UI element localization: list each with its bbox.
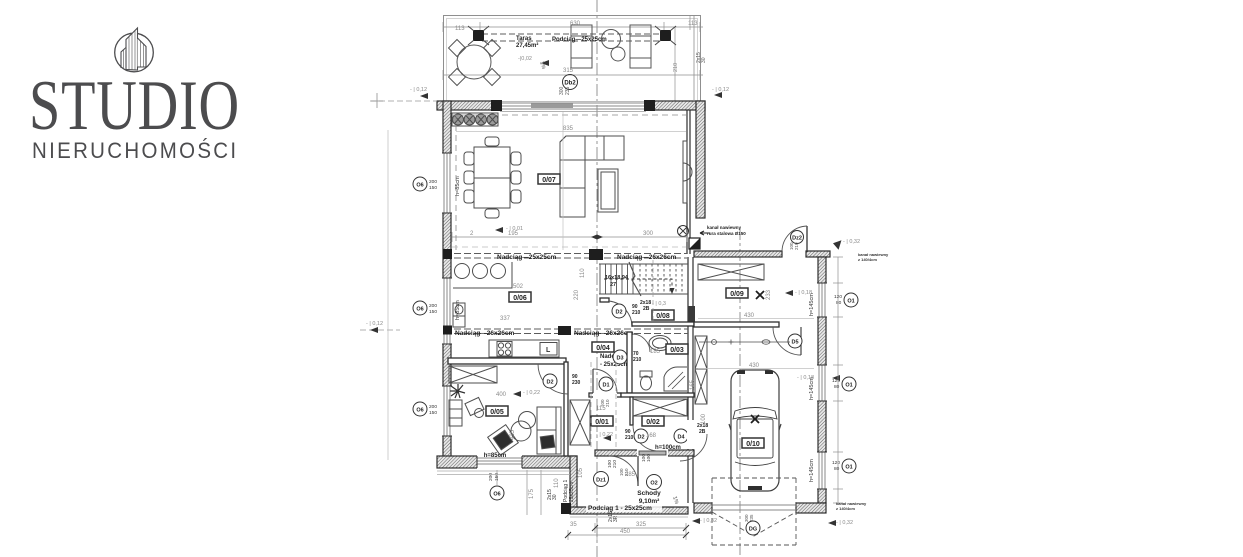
svg-text:- | 0,12: - | 0,12 [366, 321, 383, 327]
svg-text:h=145cm: h=145cm [809, 293, 815, 316]
svg-text:Nadciąg—26x26cm: Nadciąg—26x26cm [617, 254, 676, 261]
svg-text:110: 110 [554, 478, 560, 488]
svg-text:D1: D1 [602, 383, 609, 389]
svg-text:- | 0,12: - | 0,12 [712, 87, 729, 93]
svg-text:O6: O6 [416, 183, 423, 189]
svg-text:h=145cm: h=145cm [809, 459, 815, 482]
svg-text:0/03: 0/03 [670, 347, 684, 354]
svg-text:O6: O6 [416, 408, 423, 414]
svg-text:0/07: 0/07 [542, 177, 556, 184]
svg-text:230: 230 [572, 380, 581, 386]
svg-text:315: 315 [563, 68, 574, 74]
svg-text:835: 835 [563, 126, 574, 132]
svg-text:220: 220 [574, 289, 580, 300]
svg-text:- | 0,18: - | 0,18 [795, 290, 812, 296]
svg-text:z 140/4cm: z 140/4cm [836, 506, 855, 511]
svg-text:435: 435 [510, 429, 516, 440]
svg-text:285: 285 [625, 472, 636, 478]
svg-text:- | 0,32: - | 0,32 [836, 520, 853, 526]
svg-text:- | 0,18: - | 0,18 [797, 375, 814, 381]
svg-text:Taras: Taras [516, 36, 532, 42]
svg-text:L: L [546, 347, 551, 354]
svg-text:D2: D2 [637, 435, 644, 441]
svg-text:30: 30 [701, 57, 707, 63]
svg-text:0/05: 0/05 [490, 409, 504, 416]
svg-text:120: 120 [832, 460, 840, 466]
svg-text:rura stalowa Ø150: rura stalowa Ø150 [707, 231, 746, 236]
svg-text:Db2: Db2 [564, 81, 576, 87]
svg-text:150: 150 [429, 309, 437, 315]
svg-text:1%: 1% [538, 61, 546, 71]
svg-text:- | 0,32: - | 0,32 [700, 518, 717, 524]
svg-text:- | 0,01: - | 0,01 [506, 226, 523, 232]
svg-text:27,45m²: 27,45m² [516, 42, 538, 49]
svg-text:0/08: 0/08 [656, 313, 670, 320]
svg-text:DG: DG [749, 527, 757, 533]
svg-text:630: 630 [570, 21, 581, 27]
svg-text:300: 300 [643, 231, 654, 237]
svg-text:210: 210 [633, 357, 642, 363]
svg-text:502: 502 [513, 284, 524, 290]
svg-text:Schody: Schody [637, 490, 661, 497]
svg-text:0/06: 0/06 [513, 295, 527, 302]
svg-text:200: 200 [488, 473, 494, 481]
svg-text:80: 80 [834, 384, 840, 390]
svg-text:210: 210 [612, 460, 618, 468]
svg-text:O2: O2 [650, 481, 657, 487]
svg-text:235: 235 [565, 86, 571, 95]
svg-text:200: 200 [429, 179, 437, 185]
svg-text:168: 168 [646, 433, 657, 439]
svg-text:- | 0,12: - | 0,12 [410, 87, 427, 93]
svg-text:h=85cm: h=85cm [484, 453, 507, 459]
svg-text:115: 115 [596, 406, 606, 412]
svg-text:210: 210 [632, 310, 641, 316]
svg-text:210: 210 [605, 399, 610, 407]
svg-text:z 140/4cm: z 140/4cm [858, 257, 877, 262]
svg-text:Nadciąg—26x26cm: Nadciąg—26x26cm [574, 330, 633, 337]
svg-text:80: 80 [834, 466, 840, 472]
svg-text:O6: O6 [416, 307, 423, 313]
svg-text:Nadciąg—26x26cm: Nadciąg—26x26cm [455, 330, 514, 337]
svg-text:2B: 2B [699, 429, 706, 435]
svg-text:D2: D2 [546, 380, 553, 386]
svg-text:450: 450 [620, 529, 631, 535]
svg-text:105: 105 [578, 467, 584, 478]
svg-text:175: 175 [529, 488, 535, 499]
svg-text:-|0,02: -|0,02 [518, 56, 532, 62]
svg-text:185: 185 [650, 349, 661, 355]
svg-text:Dz2: Dz2 [792, 236, 802, 242]
svg-text:210: 210 [625, 435, 634, 441]
svg-text:D3: D3 [616, 356, 623, 362]
svg-text:Podciąg 1 - 25x25cm: Podciąg 1 - 25x25cm [588, 505, 652, 512]
svg-text:113: 113 [688, 21, 698, 27]
svg-text:O1: O1 [845, 383, 852, 389]
svg-text:325: 325 [636, 522, 647, 528]
svg-text:200: 200 [429, 303, 437, 309]
svg-text:30: 30 [552, 494, 558, 500]
svg-text:150: 150 [429, 185, 437, 191]
svg-text:210: 210 [794, 242, 799, 250]
svg-text:D5: D5 [791, 340, 798, 346]
svg-text:1%: 1% [671, 496, 679, 506]
svg-text:100: 100 [646, 454, 652, 462]
svg-text:27: 27 [610, 282, 616, 288]
svg-text:0/01: 0/01 [595, 419, 609, 426]
svg-text:3R: 3R [613, 515, 619, 522]
svg-text:9,10m²: 9,10m² [639, 498, 660, 505]
svg-text:200: 200 [429, 404, 437, 410]
svg-text:165: 165 [690, 379, 696, 390]
svg-text:430: 430 [749, 363, 760, 369]
svg-text:400: 400 [496, 392, 507, 398]
svg-text:- | 0,22: - | 0,22 [596, 432, 613, 438]
svg-text:0/09: 0/09 [730, 291, 744, 298]
svg-text:430: 430 [744, 313, 755, 319]
svg-text:h=85cm: h=85cm [455, 300, 461, 320]
svg-text:- 25x25cm: - 25x25cm [600, 362, 629, 368]
svg-text:D2: D2 [615, 310, 622, 316]
svg-text:O6: O6 [493, 492, 500, 498]
svg-text:Podciąg—25x25cm: Podciąg—25x25cm [552, 37, 607, 43]
svg-text:O1: O1 [847, 299, 854, 305]
svg-text:210: 210 [673, 63, 679, 72]
svg-text:110: 110 [580, 268, 586, 278]
svg-text:0/02: 0/02 [646, 419, 660, 426]
svg-text:25x25cm: 25x25cm [569, 482, 575, 502]
svg-text:D4: D4 [677, 435, 685, 441]
svg-text:0/10: 0/10 [746, 441, 760, 448]
svg-text:O1: O1 [845, 465, 852, 471]
svg-text:35: 35 [570, 522, 577, 528]
svg-text:Nadciąg—25x25cm: Nadciąg—25x25cm [497, 254, 556, 261]
svg-text:16x18,94: 16x18,94 [605, 275, 629, 281]
svg-text:337: 337 [500, 316, 511, 322]
svg-text:- | 0,22: - | 0,22 [523, 390, 540, 396]
svg-text:113: 113 [455, 26, 465, 32]
svg-text:- | 0,3: - | 0,3 [652, 301, 666, 307]
svg-text:2: 2 [470, 231, 474, 237]
svg-text:233: 233 [766, 289, 772, 300]
svg-text:kanał nawiewny: kanał nawiewny [707, 225, 742, 230]
svg-text:150: 150 [429, 410, 437, 416]
svg-text:h=100cm: h=100cm [655, 445, 681, 451]
svg-text:0/04: 0/04 [596, 345, 610, 352]
svg-text:Dz1: Dz1 [596, 478, 606, 484]
svg-text:80: 80 [836, 300, 842, 306]
svg-text:100: 100 [701, 413, 707, 424]
svg-text:2B: 2B [643, 306, 650, 312]
svg-text:- | 0,32: - | 0,32 [843, 239, 860, 245]
